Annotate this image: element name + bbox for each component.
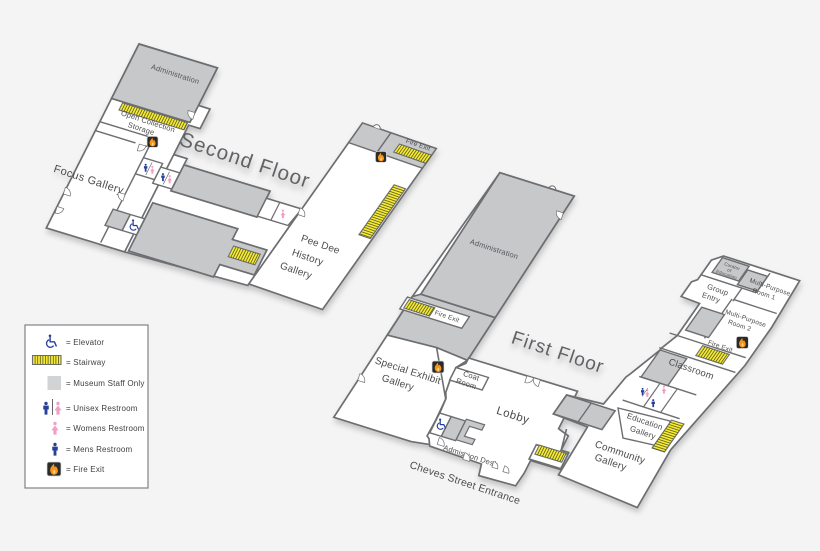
svg-text:= Fire Exit: = Fire Exit bbox=[66, 465, 105, 474]
svg-text:= Elevator: = Elevator bbox=[66, 338, 104, 347]
svg-text:= Womens Restroom: = Womens Restroom bbox=[66, 424, 145, 433]
svg-text:= Museum Staff Only: = Museum Staff Only bbox=[66, 379, 145, 388]
svg-text:= Unisex Restroom: = Unisex Restroom bbox=[66, 404, 138, 413]
svg-text:= Mens Restroom: = Mens Restroom bbox=[66, 445, 132, 454]
svg-text:= Stairway: = Stairway bbox=[66, 358, 106, 367]
